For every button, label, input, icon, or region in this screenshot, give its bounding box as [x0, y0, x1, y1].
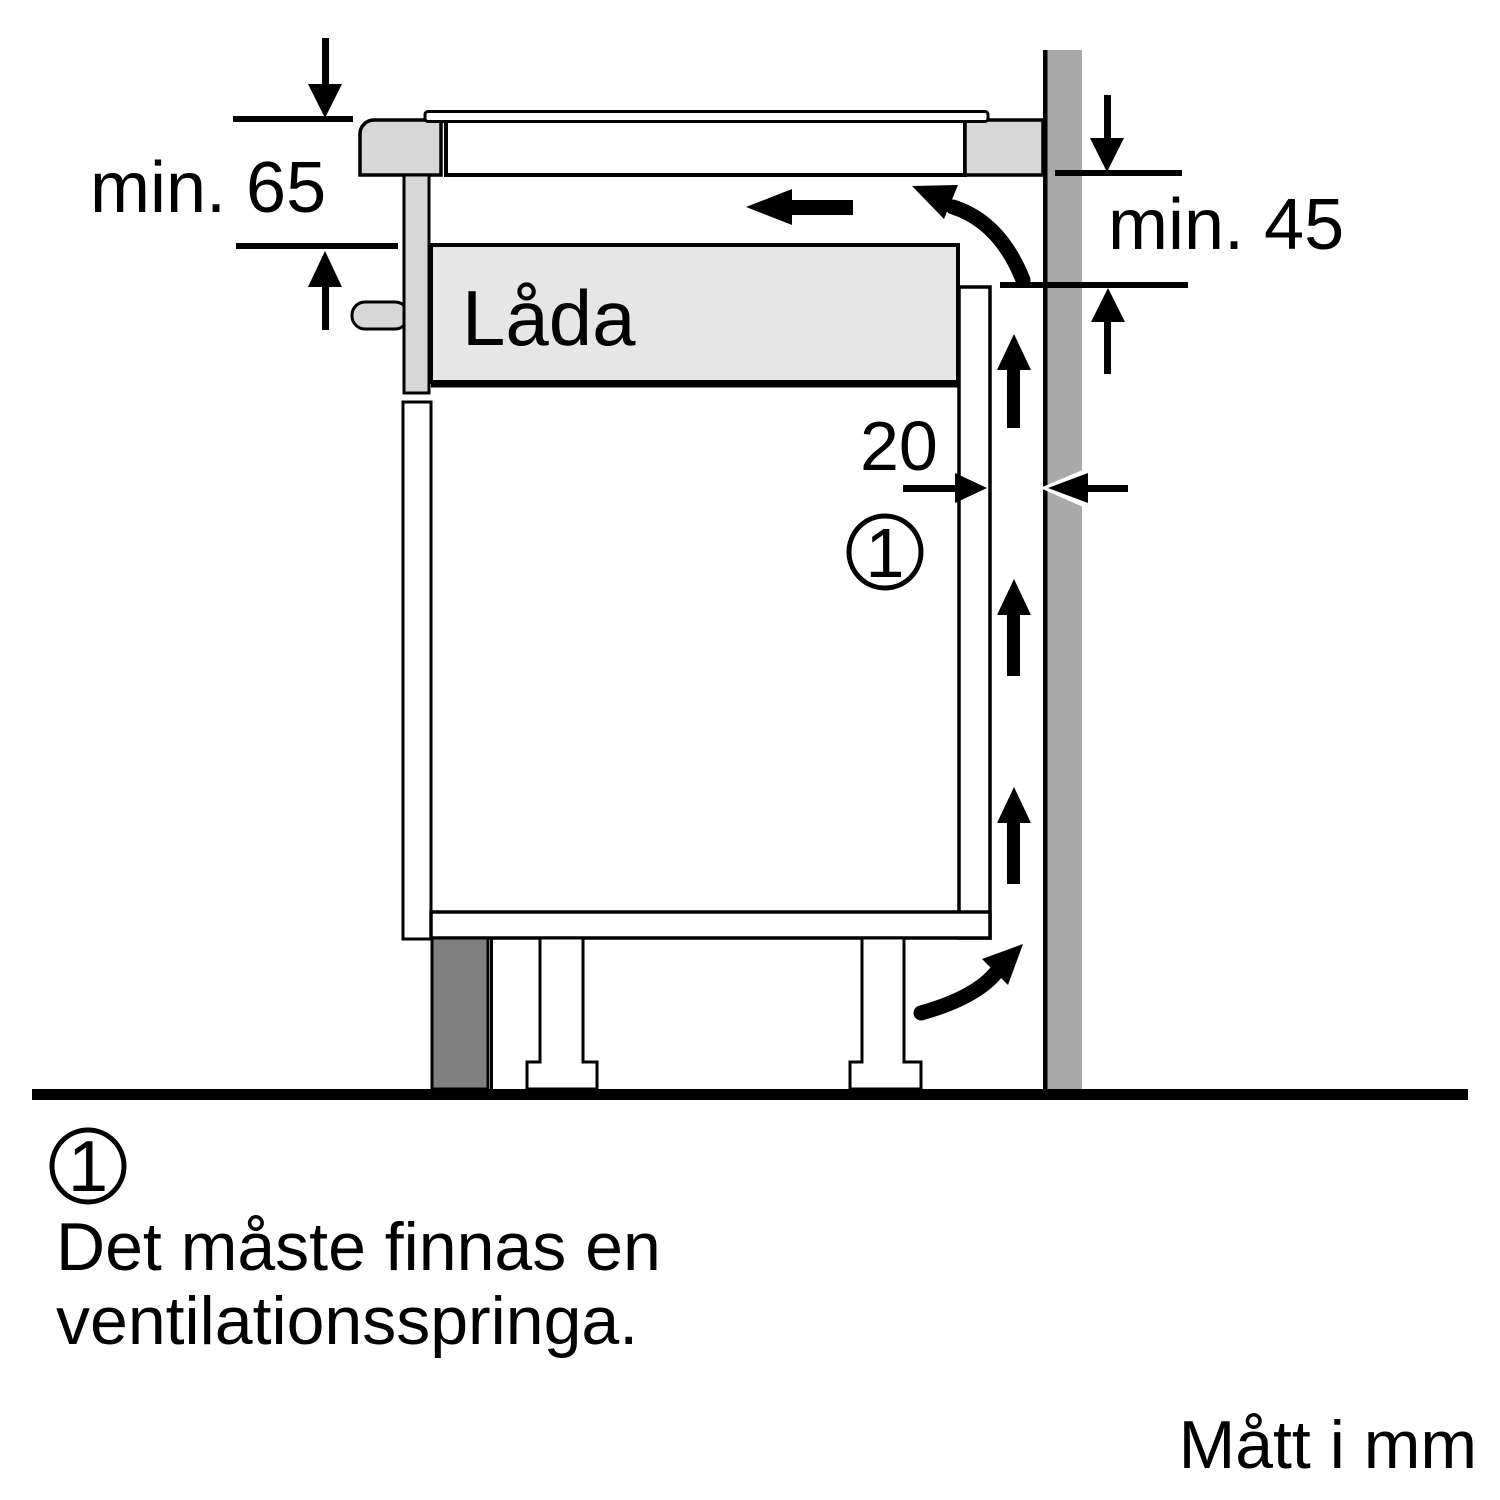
legend: 1 Det måste finnas en ventilationsspring…	[52, 1127, 661, 1359]
callout-number: 1	[866, 514, 905, 592]
drawer-label: Låda	[462, 274, 636, 362]
min65-down-arrow-shaft	[322, 38, 329, 86]
drawer-bottom-rail	[431, 383, 960, 388]
floor-line	[32, 1089, 1468, 1100]
hob-ventilation-diagram: Låda min. 65 min. 45 20	[0, 0, 1500, 1500]
installation-diagram: Låda min. 65 min. 45 20	[0, 0, 1500, 1500]
cabinet-bottom-shelf	[431, 912, 990, 938]
drawer: Låda	[431, 245, 958, 382]
worktop-body	[446, 120, 965, 175]
worktop-left-cap	[360, 120, 441, 175]
min45-upper-tick	[1055, 170, 1182, 176]
airflow-up-arrow1-icon	[997, 334, 1031, 370]
min45-up-arrow-icon	[1091, 288, 1125, 322]
wall-edge-line	[1043, 50, 1048, 1089]
cabinet-back-batten	[959, 287, 990, 938]
airflow-up-arrow1-shaft	[1007, 368, 1020, 428]
airflow-bottom-curve	[921, 970, 998, 1013]
min65-down-arrow-icon	[308, 84, 342, 118]
wall	[1043, 50, 1082, 1089]
min65-lower-tick	[236, 243, 398, 249]
plinth-edge-line	[490, 938, 493, 1089]
min65-upper-tick	[233, 116, 353, 122]
drawer-handle	[352, 302, 408, 329]
min65-up-arrow-shaft	[322, 285, 329, 330]
gap20-label: 20	[860, 407, 938, 485]
cabinet-leg-front	[527, 938, 597, 1089]
hob-glass-plate	[425, 112, 988, 122]
airflow-up-arrow3-icon	[997, 787, 1031, 823]
airflow-up-arrow3-shaft	[1007, 821, 1020, 884]
callout-marker: 1	[849, 514, 921, 592]
min45-down-arrow-icon	[1090, 138, 1124, 172]
cabinet-left-panel	[403, 402, 431, 939]
hob-front-trim	[404, 175, 429, 393]
airflow-up-arrow2-shaft	[1007, 613, 1020, 676]
dimension-min65: min. 65	[90, 38, 398, 330]
wall-fill	[1047, 50, 1082, 1089]
units-note: Mått i mm	[1179, 1407, 1477, 1483]
worktop	[360, 112, 1043, 176]
legend-marker-number: 1	[68, 1127, 108, 1207]
min45-label: min. 45	[1108, 185, 1344, 265]
gap20-left-arrow-shaft	[1086, 485, 1128, 492]
min65-up-arrow-icon	[308, 251, 342, 287]
min65-label: min. 65	[90, 148, 326, 228]
plinth-panel	[432, 938, 488, 1089]
airflow-left-arrow-icon	[746, 189, 853, 225]
gap20-right-arrow-shaft	[903, 485, 959, 492]
dimension-gap20: 20	[860, 407, 1128, 511]
min45-down-arrow-shaft	[1104, 95, 1111, 140]
cabinet-leg-rear	[850, 938, 921, 1089]
min45-up-arrow-shaft	[1104, 320, 1111, 374]
worktop-right-section	[965, 120, 1043, 175]
airflow-top-curve	[953, 207, 1023, 280]
legend-text-line2: ventilationsspringa.	[56, 1283, 638, 1359]
airflow-up-arrow2-icon	[997, 579, 1031, 615]
legend-text-line1: Det måste finnas en	[56, 1209, 661, 1285]
